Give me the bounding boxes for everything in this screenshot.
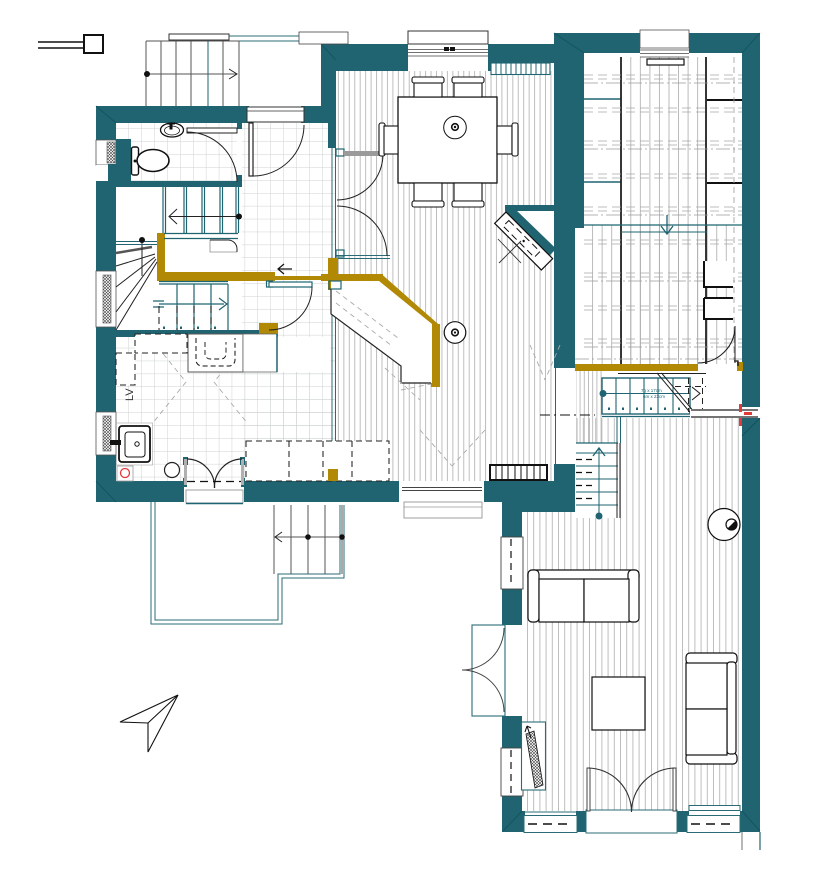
- svg-text:7g x 17cm: 7g x 17cm: [641, 388, 662, 393]
- svg-text:6m x 23cm: 6m x 23cm: [643, 394, 665, 399]
- svg-text:LV: LV: [124, 388, 136, 401]
